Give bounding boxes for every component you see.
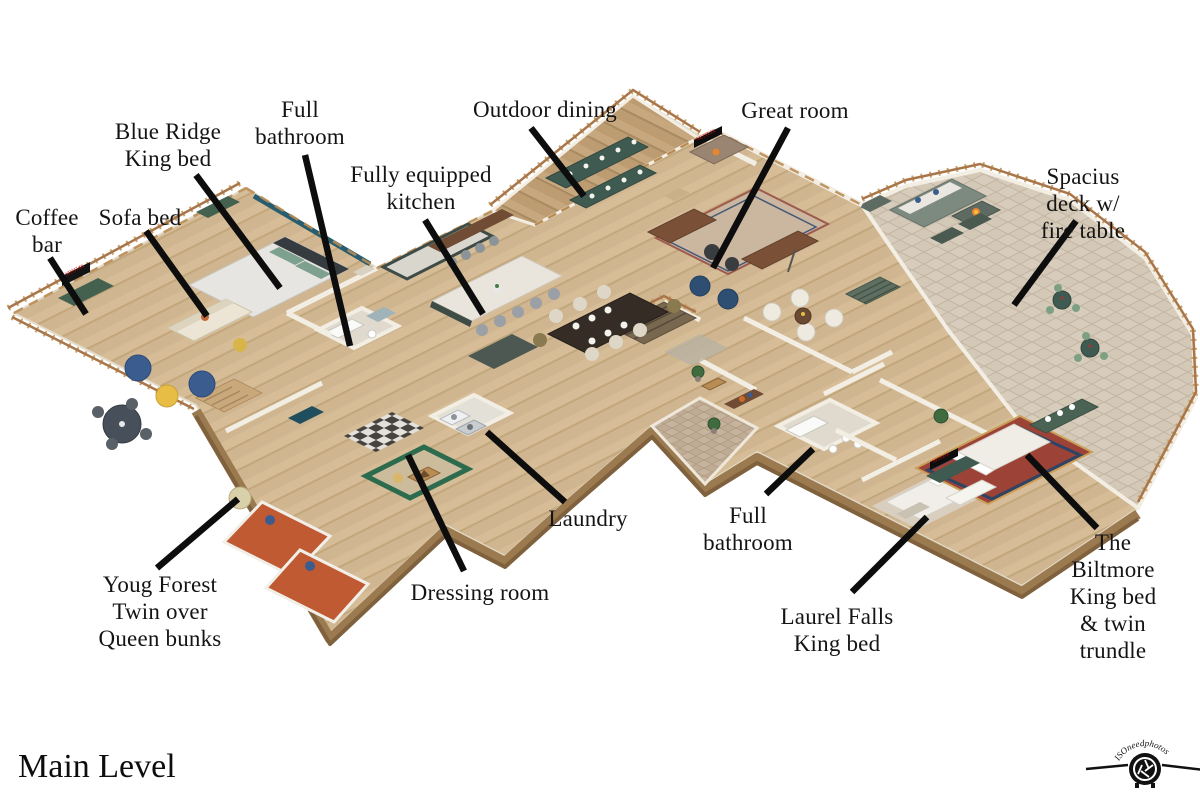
page-title: Main Level bbox=[18, 748, 176, 786]
floorplan-page: NETFLIX bbox=[0, 0, 1200, 800]
accent-chair bbox=[690, 276, 710, 296]
barrel-chair bbox=[125, 355, 151, 381]
armchair bbox=[229, 487, 251, 509]
barrel-chair bbox=[189, 371, 215, 397]
watermark: ISOneedphotos bbox=[1086, 738, 1200, 788]
accent-chair bbox=[718, 289, 738, 309]
round-coffee-table bbox=[156, 385, 178, 407]
floorplan-illustration: NETFLIX bbox=[0, 0, 1200, 800]
